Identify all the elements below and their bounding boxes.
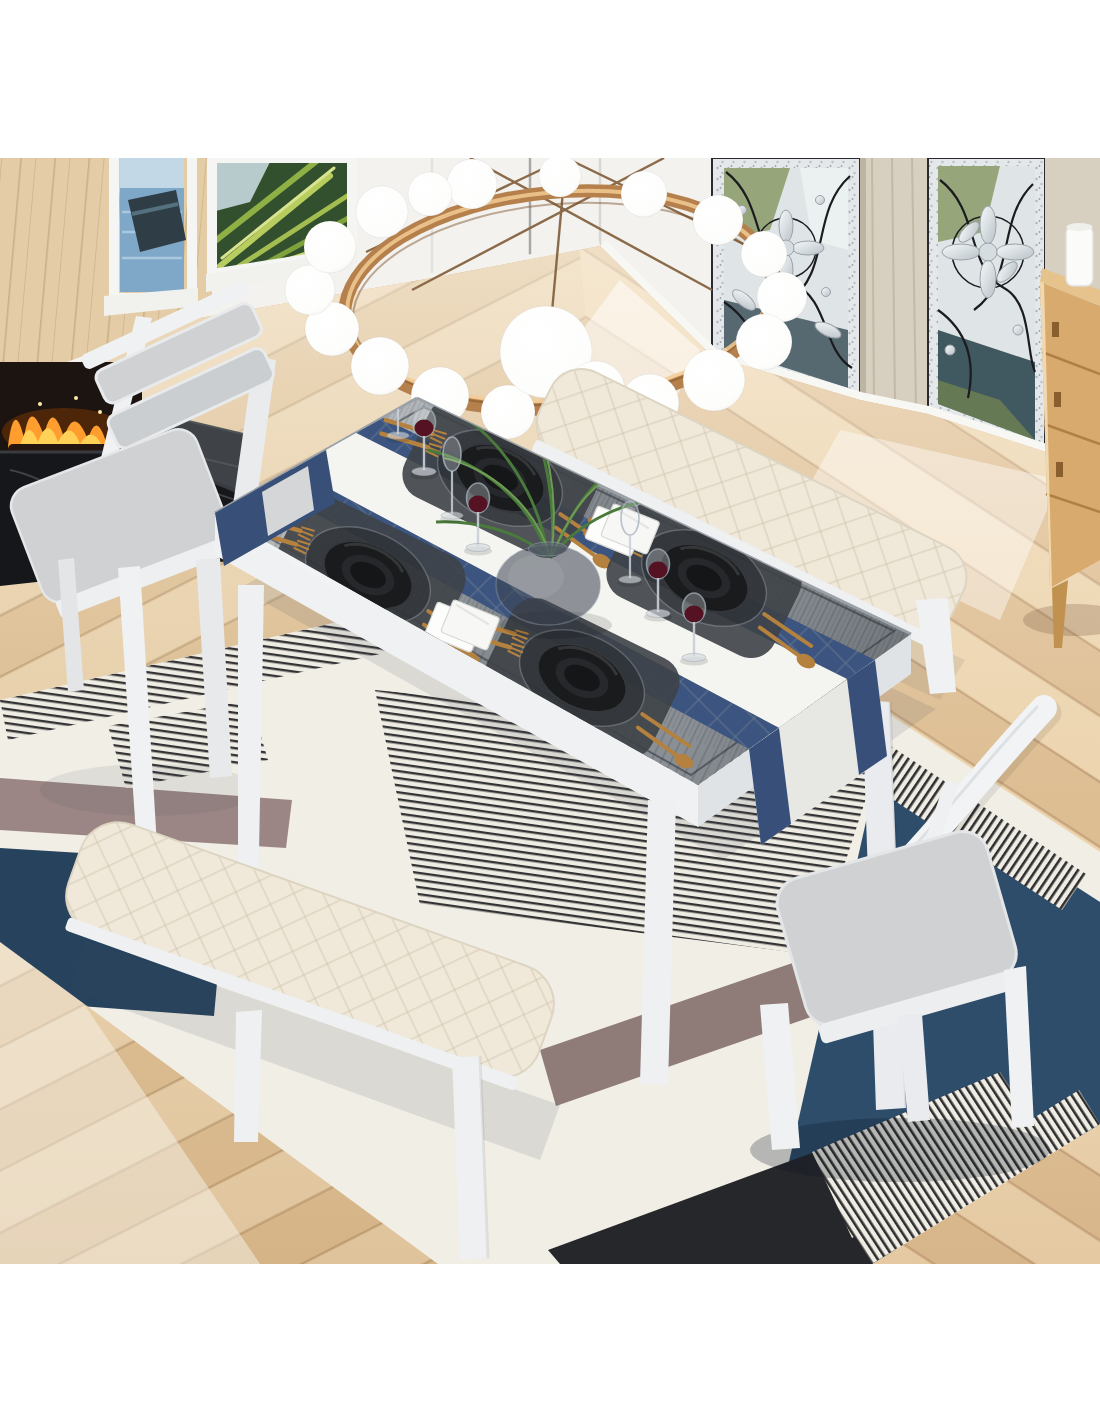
scene-svg	[0, 0, 1100, 1422]
bench-leg	[234, 1010, 262, 1142]
product-photo	[0, 0, 1100, 1422]
wood-pillar	[860, 158, 928, 412]
stained-glass-right	[928, 158, 1045, 450]
candle	[1066, 223, 1093, 286]
window-ocean	[104, 152, 198, 316]
